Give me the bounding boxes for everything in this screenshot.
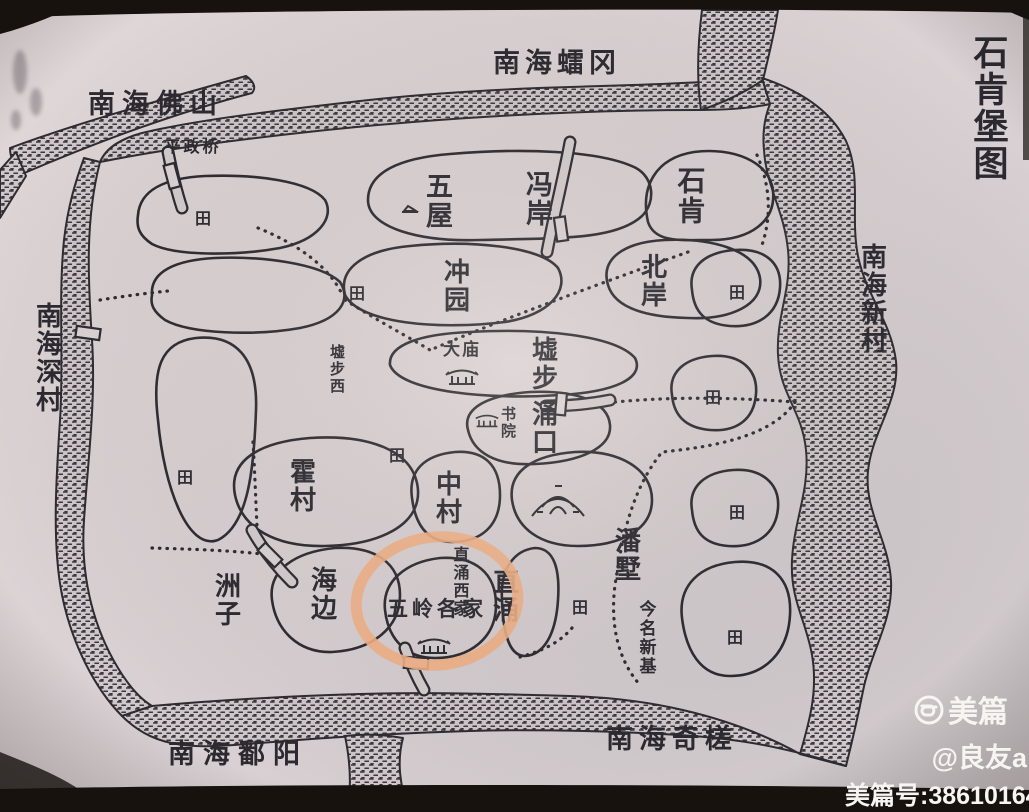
watermark-handle: @良友a [932, 742, 1028, 773]
scanned-map-photo: 石肯堡图南海𧒽冈南海佛山平政桥南海深村南海新村南海鄱阳南海奇槎五屋冯岸石肯北岸冲… [0, 0, 1029, 812]
shiken-fort-map: 石肯堡图南海𧒽冈南海佛山平政桥南海深村南海新村南海鄱阳南海奇槎五屋冯岸石肯北岸冲… [0, 0, 1029, 812]
watermark-meipian-id: 美篇号:38610164 [845, 781, 1029, 810]
photo-vignette [0, 0, 1029, 812]
watermark-brand: 美篇 [948, 695, 1008, 729]
